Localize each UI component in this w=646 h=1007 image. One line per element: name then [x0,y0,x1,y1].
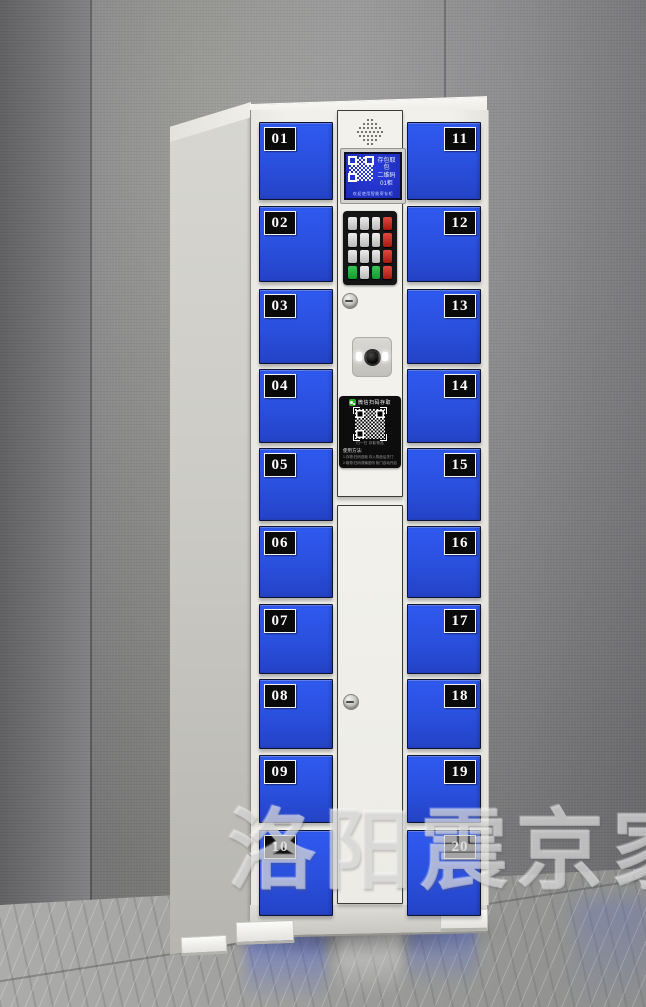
wechat-panel-header: 微信扫码存取 [343,399,397,406]
lcd-line-1: 存包取包 [375,158,398,172]
keypad-key [348,233,357,246]
keypad-key-red [383,233,392,246]
keypad-key [360,250,369,263]
door-number-label: 18 [444,684,476,708]
locker-door-16: 16 [407,526,481,598]
keypad-key [372,250,381,263]
locker-door-14: 14 [407,369,481,443]
keypad-key [360,266,369,279]
door-number-label: 08 [264,684,296,708]
door-number-label: 03 [264,294,296,318]
led-light-icon [382,352,388,361]
keypad-key-green [348,266,357,279]
door-number-label: 07 [264,609,296,633]
speaker-grille-icon [356,119,384,145]
led-light-icon [356,352,362,361]
wechat-panel-title: 微信扫码存取 [358,399,391,406]
door-number-label: 13 [444,294,476,318]
cam-lock-icon [342,293,358,309]
door-number-label: 15 [444,453,476,477]
door-number-label: 14 [444,374,476,398]
locker-door-13: 13 [407,289,481,364]
locker-door-05: 05 [259,448,333,521]
lcd-screen: 存包取包 二维码 01柜 欢迎使用智能寄存柜 [344,152,402,200]
control-panel-door: 存包取包 二维码 01柜 欢迎使用智能寄存柜 [337,110,403,497]
usage-title: 使用方法: [343,448,397,454]
keypad-key [348,250,357,263]
lcd-footer: 欢迎使用智能寄存柜 [346,191,400,197]
wechat-scan-panel: 微信扫码存取 扫一扫 存取物品 使用方法: 1.存物:扫码选柜 存入物品后关门 … [339,396,401,468]
watermark-text: 洛阳震京家具 [228,780,646,907]
usage-line-2: 2.取物:扫码或输密码 柜门自动开启 [343,461,397,466]
locker-door-18: 18 [407,679,481,749]
keypad-key [372,217,381,230]
locker-door-08: 08 [259,679,333,749]
qr-code-icon [349,157,373,181]
usage-line-1: 1.存物:扫码选柜 存入物品后关门 [343,455,397,460]
keypad-key [360,217,369,230]
keypad-key-red [383,250,392,263]
door-number-label: 02 [264,211,296,235]
keypad-key [360,233,369,246]
camera-module [352,337,392,377]
locker-door-02: 02 [259,206,333,282]
door-number-label: 01 [264,127,296,151]
cabinet-foot-left [236,920,295,945]
door-number-label: 16 [444,531,476,555]
locker-door-12: 12 [407,206,481,282]
door-number-label: 06 [264,531,296,555]
door-number-label: 05 [264,453,296,477]
qr-code-icon [354,408,386,440]
cabinet-foot-side [181,935,228,956]
keypad-key [372,233,381,246]
locker-door-07: 07 [259,604,333,674]
door-number-label: 04 [264,374,296,398]
keypad-key-red [383,266,392,279]
lcd-display: 存包取包 二维码 01柜 欢迎使用智能寄存柜 [340,148,406,204]
qr-caption: 扫一扫 存取物品 [343,441,397,446]
door-number-label: 17 [444,609,476,633]
keypad-key [348,217,357,230]
lcd-line-3: 01柜 [375,181,398,188]
numeric-keypad [343,211,397,285]
keypad-key-green [372,266,381,279]
keypad-key-red [383,217,392,230]
locker-door-04: 04 [259,369,333,443]
locker-door-06: 06 [259,526,333,598]
lcd-text: 存包取包 二维码 01柜 [375,157,398,188]
product-photo-scene: 存包取包 二维码 01柜 欢迎使用智能寄存柜 [0,0,646,1007]
cam-lock-icon [343,694,359,710]
camera-lens-icon [366,351,379,364]
locker-door-15: 15 [407,448,481,521]
locker-door-11: 11 [407,122,481,200]
locker-door-01: 01 [259,122,333,200]
locker-door-17: 17 [407,604,481,674]
door-number-label: 12 [444,211,476,235]
wechat-icon [349,399,356,406]
lcd-line-2: 二维码 [375,173,398,180]
locker-door-03: 03 [259,289,333,364]
door-number-label: 11 [444,127,476,151]
